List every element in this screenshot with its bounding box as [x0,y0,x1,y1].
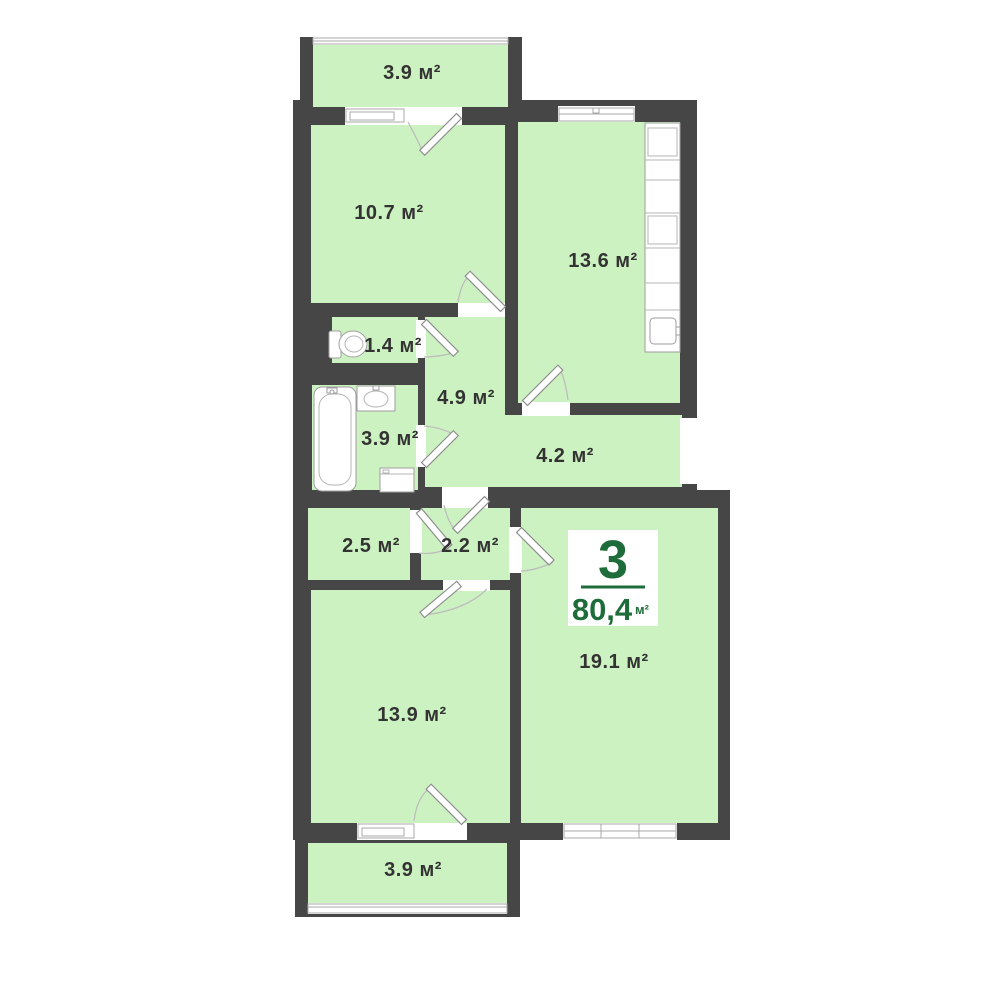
badge-rooms-count: 3 [598,530,628,590]
balcony-bottom-window-icon [308,904,507,913]
label-kitchen-area: 13.6 м² [568,250,637,272]
wall-balcony-top-right-post [508,37,522,110]
toilet-icon [329,331,367,358]
label-bedroom-2-area: 13.9 м² [377,704,446,726]
label-living-area: 19.1 м² [579,651,648,673]
label-bedroom-1-area: 10.7 м² [354,202,423,224]
label-bathroom-area: 3.9 м² [361,428,419,450]
kitchen-units-icon [645,123,680,352]
label-hall-area: 2.2 м² [441,535,499,557]
wall-balcony-top-left-post [300,37,313,110]
label-wc-area: 1.4 м² [364,335,422,357]
washing-machine-icon [380,468,414,492]
floorplan-canvas: 3.9 м² 10.7 м² 13.6 м² 1.4 м² 4.9 м² 3.9… [0,0,1000,1000]
kitchen-sink-icon [650,318,676,344]
label-balcony-bottom-area: 3.9 м² [384,859,442,881]
label-storage-area: 2.5 м² [342,535,400,557]
bathtub-icon [314,387,356,491]
floorplan-svg: 3.9 м² 10.7 м² 13.6 м² 1.4 м² 4.9 м² 3.9… [0,0,1000,1000]
entrance-opening [680,418,698,484]
badge-total-area: 80,4 [572,592,633,627]
label-corridor-area: 4.2 м² [536,445,594,467]
opening-balcony-door-bedroom-2 [413,823,467,840]
badge-area-unit: м² [635,602,650,617]
sink-icon [357,386,395,411]
apartment-badge: 3 80,4 м² [568,530,658,627]
label-hallway-area: 4.9 м² [437,387,495,409]
label-balcony-top-area: 3.9 м² [383,62,441,84]
